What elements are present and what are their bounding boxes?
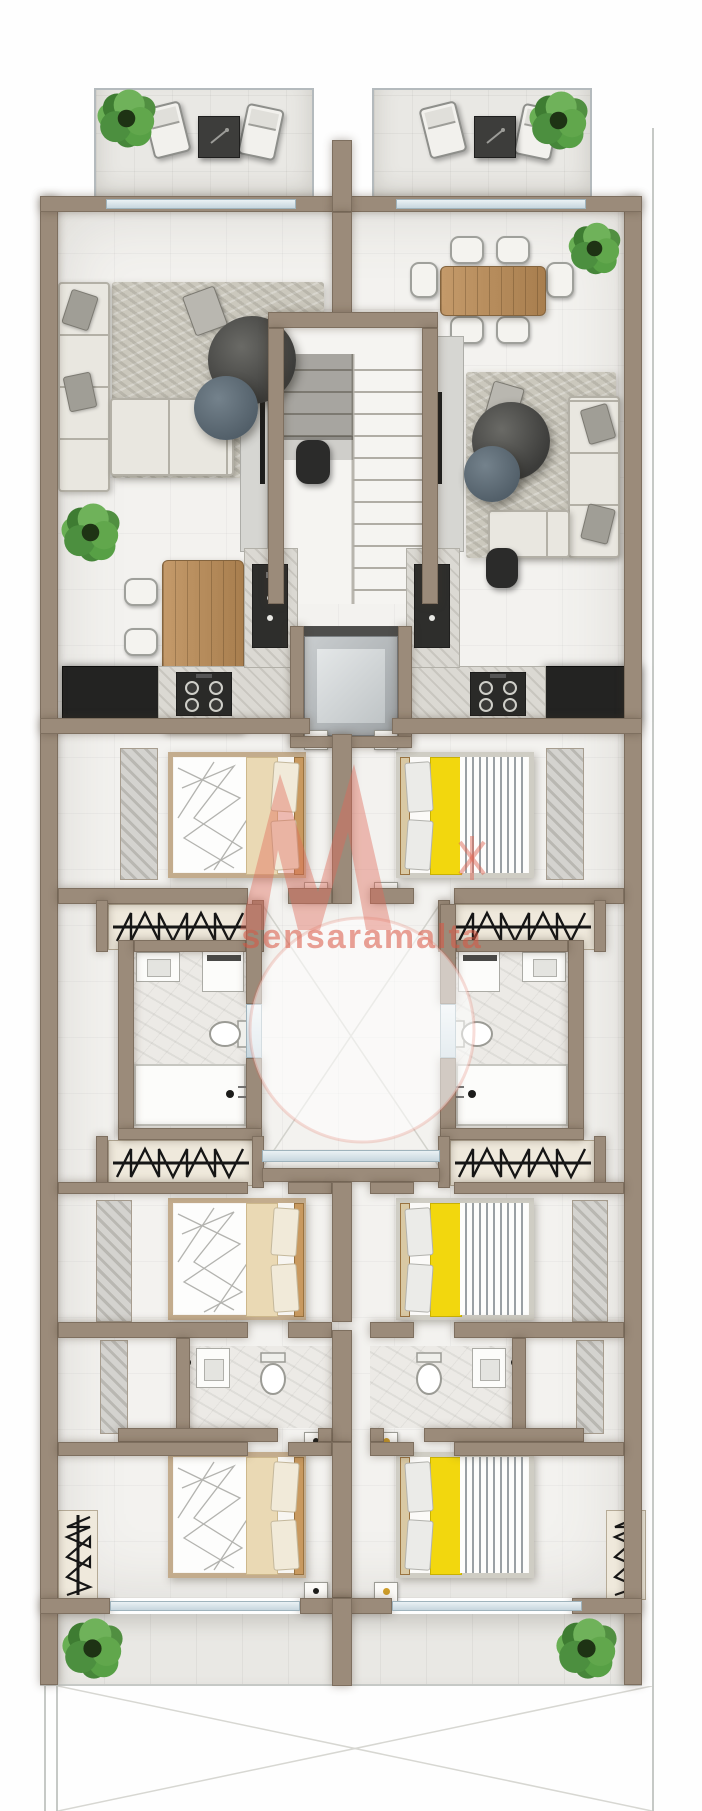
bedroom2-wall bbox=[370, 1182, 414, 1194]
kitchen-bedroom-wall-left bbox=[40, 718, 310, 734]
coffee-table-slate bbox=[464, 446, 520, 502]
plant bbox=[577, 1639, 595, 1657]
balcony-door-right bbox=[392, 1601, 582, 1611]
shower-drain bbox=[226, 1090, 234, 1098]
bathroom2-wall bbox=[370, 1428, 384, 1442]
void-line-left-a bbox=[44, 1686, 46, 1811]
washing-machine bbox=[458, 950, 500, 992]
vanity-basin bbox=[522, 952, 566, 982]
bathroom2-wall bbox=[58, 1322, 248, 1338]
lightwell-glazing bbox=[262, 1150, 440, 1162]
toilet bbox=[206, 1016, 248, 1052]
bedroom3-wall bbox=[58, 1442, 248, 1456]
basin bbox=[204, 1359, 224, 1381]
balcony-door-left bbox=[110, 1601, 300, 1611]
plant bbox=[550, 112, 568, 130]
bathroom2-wall bbox=[370, 1322, 414, 1338]
party-wall-living bbox=[332, 212, 352, 316]
bathroom-wall bbox=[440, 904, 456, 1004]
bathroom-wall bbox=[440, 1128, 584, 1140]
coffee-table-slate bbox=[194, 376, 258, 440]
shower-drain bbox=[468, 1090, 476, 1098]
bed-pillow bbox=[270, 1519, 299, 1571]
basin bbox=[533, 959, 557, 977]
bed-pillow bbox=[270, 761, 299, 813]
shower-valve bbox=[456, 1096, 464, 1098]
bathroom-wall bbox=[118, 940, 134, 1136]
lightwell-end-wall bbox=[262, 1168, 440, 1182]
lift-door-track bbox=[304, 626, 398, 636]
elevator-car-floor bbox=[317, 649, 385, 723]
kitchen-tall-units-left bbox=[62, 666, 160, 722]
party-wall-terrace bbox=[332, 140, 352, 212]
bedroom3-wall bbox=[288, 1442, 332, 1456]
dining-chair bbox=[124, 628, 158, 656]
party-wall-bedroom3 bbox=[332, 1442, 352, 1598]
bedroom3-wall bbox=[370, 1442, 414, 1456]
vanity-basin bbox=[196, 1348, 230, 1388]
dining-chair bbox=[546, 262, 574, 298]
bed-pillow bbox=[270, 819, 299, 871]
stairwell-wall-left bbox=[268, 328, 284, 604]
nightstand-lamp bbox=[383, 1588, 390, 1595]
bathroom2-wall bbox=[512, 1338, 526, 1442]
bed-pillow bbox=[404, 1519, 433, 1571]
bed-blanket-yellow bbox=[430, 1203, 462, 1317]
shower-valve bbox=[238, 1086, 246, 1088]
shower-valve bbox=[238, 1096, 246, 1098]
built-in-wardrobe bbox=[572, 1200, 608, 1322]
wardrobe-hanger-run bbox=[108, 1140, 254, 1186]
vanity-basin bbox=[136, 952, 180, 982]
terrace-side-table bbox=[198, 116, 240, 158]
wardrobe-end-wall bbox=[96, 900, 108, 952]
bedroom2-wall bbox=[454, 1182, 624, 1194]
bathroom2-wall bbox=[424, 1428, 584, 1442]
bathroom-wall bbox=[134, 940, 246, 952]
kitchen-hob-right bbox=[470, 672, 526, 716]
washer-panel bbox=[207, 955, 241, 961]
bed-pillow bbox=[404, 819, 433, 871]
bedroom2-wall bbox=[58, 1182, 248, 1194]
bedroom1-hall-wall bbox=[58, 888, 248, 904]
bathroom-wall bbox=[118, 1128, 262, 1140]
rear-wall-stub bbox=[40, 1598, 110, 1614]
bedroom1-hall-wall bbox=[288, 888, 332, 904]
duvet-pattern bbox=[174, 1204, 252, 1314]
nightstand-decor bbox=[313, 1588, 319, 1594]
bed-blanket-yellow bbox=[430, 1457, 462, 1575]
bathroom2-wall bbox=[288, 1322, 332, 1338]
lounger-backrest bbox=[424, 106, 455, 129]
plant bbox=[118, 110, 136, 128]
party-wall-balcony bbox=[332, 1598, 352, 1686]
table-glyph bbox=[475, 117, 515, 157]
kitchen-bedroom-wall-right bbox=[392, 718, 642, 734]
built-in-cupboard bbox=[576, 1340, 604, 1434]
dining-chair bbox=[496, 316, 530, 344]
toilet bbox=[454, 1016, 496, 1052]
bathroom-wall bbox=[440, 1058, 456, 1136]
dining-chair bbox=[410, 262, 438, 298]
hanger-hatch bbox=[59, 1511, 97, 1599]
floor-plan-canvas: sensaramalta bbox=[0, 0, 702, 1811]
tv-left bbox=[260, 392, 265, 484]
built-in-wardrobe bbox=[546, 748, 584, 880]
bathroom2-wall bbox=[176, 1338, 190, 1442]
pouf bbox=[296, 440, 330, 484]
pouf bbox=[486, 548, 518, 588]
basin bbox=[480, 1359, 500, 1381]
toilet bbox=[256, 1352, 290, 1398]
void-cross-lines bbox=[58, 1686, 652, 1811]
rear-wall-stub bbox=[572, 1598, 642, 1614]
lightwell-cross-lines bbox=[262, 904, 440, 1168]
bathroom-wall bbox=[246, 1058, 262, 1136]
bed-pillow bbox=[270, 1207, 299, 1257]
bathroom2-wall bbox=[318, 1428, 332, 1442]
exterior-wall-right bbox=[624, 196, 642, 1685]
bed-pillow bbox=[404, 1263, 433, 1313]
vanity-basin bbox=[472, 1348, 506, 1388]
lounger-backrest bbox=[148, 106, 179, 129]
plant bbox=[587, 241, 603, 257]
wardrobe-end-wall bbox=[594, 1136, 606, 1188]
duvet-pattern bbox=[174, 758, 252, 872]
kitchen-hob-left bbox=[176, 672, 232, 716]
built-in-cupboard bbox=[100, 1340, 128, 1434]
bedroom1-hall-wall bbox=[370, 888, 414, 904]
bed-pillow bbox=[404, 1461, 433, 1513]
terrace-side-table bbox=[474, 116, 516, 158]
bed-pillow bbox=[404, 1207, 433, 1257]
built-in-wardrobe bbox=[120, 748, 158, 880]
plant bbox=[83, 1639, 101, 1657]
bedroom3-wall bbox=[454, 1442, 624, 1456]
bathroom2-wall bbox=[118, 1428, 278, 1442]
shower-valve bbox=[456, 1086, 464, 1088]
site-boundary-line-right bbox=[652, 128, 654, 1811]
terrace-door-left bbox=[106, 199, 296, 209]
dining-chair bbox=[496, 236, 530, 264]
exterior-wall-left bbox=[40, 196, 58, 1685]
striped-duvet bbox=[460, 757, 528, 873]
dining-table-right bbox=[440, 266, 546, 316]
bed-blanket-yellow bbox=[430, 757, 462, 875]
washing-machine bbox=[202, 950, 244, 992]
bathroom-wall bbox=[456, 940, 568, 952]
built-in-wardrobe bbox=[96, 1200, 132, 1322]
striped-duvet bbox=[460, 1203, 528, 1315]
bathroom2-wall bbox=[454, 1322, 624, 1338]
bedroom2-wall bbox=[288, 1182, 332, 1194]
terrace-door-right bbox=[396, 199, 586, 209]
elevator-car bbox=[304, 636, 398, 736]
washer-panel bbox=[463, 955, 497, 961]
toilet bbox=[412, 1352, 446, 1398]
stairwell-wall-right bbox=[422, 328, 438, 604]
table-glyph bbox=[199, 117, 239, 157]
wardrobe-end-wall bbox=[594, 900, 606, 952]
lounger-backrest bbox=[248, 109, 279, 131]
duvet-pattern bbox=[174, 1458, 252, 1572]
party-wall-bathroom2 bbox=[332, 1330, 352, 1442]
bathroom-glass-door bbox=[246, 1004, 262, 1058]
bathroom-wall bbox=[246, 904, 262, 1004]
bathroom-glass-door bbox=[440, 1004, 456, 1058]
party-wall-bedroom1 bbox=[332, 734, 352, 904]
striped-duvet bbox=[460, 1457, 528, 1573]
wardrobe-hanger-run-vertical bbox=[58, 1510, 98, 1600]
dining-chair bbox=[450, 236, 484, 264]
bed-pillow bbox=[404, 761, 433, 813]
bathroom-wall bbox=[568, 940, 584, 1136]
dining-chair bbox=[124, 578, 158, 606]
hanger-hatch bbox=[109, 1141, 253, 1185]
wardrobe-end-wall bbox=[96, 1136, 108, 1188]
basin bbox=[147, 959, 171, 977]
stairwell-wall-top bbox=[268, 312, 438, 328]
wardrobe-hanger-run bbox=[450, 1140, 596, 1186]
party-wall-bedroom2 bbox=[332, 1182, 352, 1322]
bed-pillow bbox=[270, 1461, 299, 1513]
hanger-hatch bbox=[451, 1141, 595, 1185]
bed-pillow bbox=[270, 1263, 299, 1313]
plant bbox=[82, 524, 100, 542]
